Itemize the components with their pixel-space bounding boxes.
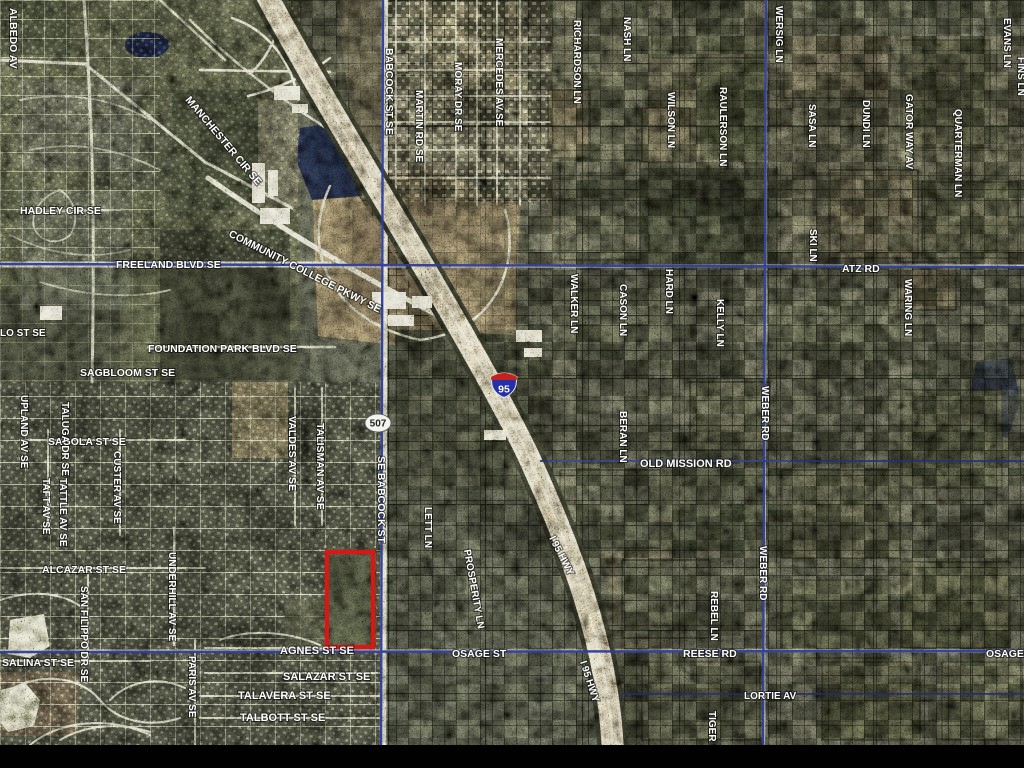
svg-text:WEBER RD: WEBER RD [759,386,770,440]
svg-text:WEBER RD: WEBER RD [757,546,768,600]
svg-text:TALISMAN AV SE: TALISMAN AV SE [314,423,326,510]
svg-text:SKI LN: SKI LN [807,229,818,262]
svg-text:OSAGE ST: OSAGE ST [452,648,507,660]
svg-text:REBEL LN: REBEL LN [708,591,719,641]
svg-text:ALBEDO AV: ALBEDO AV [7,8,19,69]
svg-text:NASH LN: NASH LN [621,17,632,61]
svg-text:507: 507 [370,419,387,430]
svg-text:TATTLE AV SE: TATTLE AV SE [57,478,68,547]
svg-text:SASA LN: SASA LN [806,104,817,148]
svg-text:CASON LN: CASON LN [617,284,628,336]
svg-text:ALCAZAR ST SE: ALCAZAR ST SE [42,564,126,576]
svg-text:HARD LN: HARD LN [663,269,674,314]
svg-text:MARTIN RD SE: MARTIN RD SE [413,90,424,163]
svg-text:TALBOTT ST SE: TALBOTT ST SE [240,712,325,724]
svg-text:FREELAND BLVD SE: FREELAND BLVD SE [116,259,221,271]
svg-text:QUARTERMAN LN: QUARTERMAN LN [952,109,963,197]
svg-text:LORTIE AV: LORTIE AV [744,691,797,702]
svg-text:CUSTER AV SE: CUSTER AV SE [111,451,122,524]
svg-text:SALINA ST SE: SALINA ST SE [2,657,74,669]
svg-text:95: 95 [498,384,510,396]
svg-text:PARIS AV SE: PARIS AV SE [186,656,197,718]
svg-text:FINS LN: FINS LN [1015,57,1024,96]
svg-text:SALAZAR ST SE: SALAZAR ST SE [283,671,370,683]
svg-text:WERSIG LN: WERSIG LN [773,6,784,63]
svg-text:RICHARDSON LN: RICHARDSON LN [571,20,582,104]
svg-text:OLD MISSION RD: OLD MISSION RD [640,458,732,470]
svg-text:SAGBLOOM ST SE: SAGBLOOM ST SE [80,367,175,379]
svg-text:SAN FILIPPO DR SE: SAN FILIPPO DR SE [78,586,89,682]
svg-text:BERAN LN: BERAN LN [617,411,628,463]
svg-text:TALUGA DR SE: TALUGA DR SE [59,402,70,476]
svg-text:WARING LN: WARING LN [902,279,913,336]
svg-text:EVANS LN: EVANS LN [1001,18,1012,68]
svg-text:MORAY DR SE: MORAY DR SE [452,62,463,132]
svg-text:OSAGE S: OSAGE S [986,648,1024,660]
svg-text:TAFT AV SE: TAFT AV SE [40,478,51,535]
svg-text:VALDES AV SE: VALDES AV SE [286,416,298,491]
svg-text:TALAVERA ST SE: TALAVERA ST SE [238,690,331,702]
svg-text:SE BABCOCK ST: SE BABCOCK ST [375,456,387,544]
svg-text:UNDERHILL AV SE: UNDERHILL AV SE [166,552,177,642]
svg-text:DUNDI LN: DUNDI LN [860,100,871,148]
svg-text:UPLAND AV SE: UPLAND AV SE [18,395,29,469]
svg-text:GATOR WAY AV: GATOR WAY AV [903,94,914,170]
svg-text:WILSON LN: WILSON LN [665,92,676,148]
svg-text:HADLEY CIR SE: HADLEY CIR SE [20,205,101,217]
svg-text:WALKER LN: WALKER LN [568,274,579,333]
svg-text:LO ST SE: LO ST SE [0,328,46,339]
svg-text:RAULERSON LN: RAULERSON LN [717,87,728,166]
svg-text:BABCOCK ST SE: BABCOCK ST SE [383,48,395,135]
svg-text:REESE RD: REESE RD [683,648,737,660]
svg-text:MERCEDES AV SE: MERCEDES AV SE [493,38,504,127]
svg-text:FOUNDATION PARK BLVD SE: FOUNDATION PARK BLVD SE [148,343,297,355]
svg-text:KELLY LN: KELLY LN [714,299,725,347]
svg-text:AGNES ST SE: AGNES ST SE [280,645,354,657]
svg-text:ATZ RD: ATZ RD [842,263,880,275]
svg-text:LETT LN: LETT LN [422,507,433,548]
